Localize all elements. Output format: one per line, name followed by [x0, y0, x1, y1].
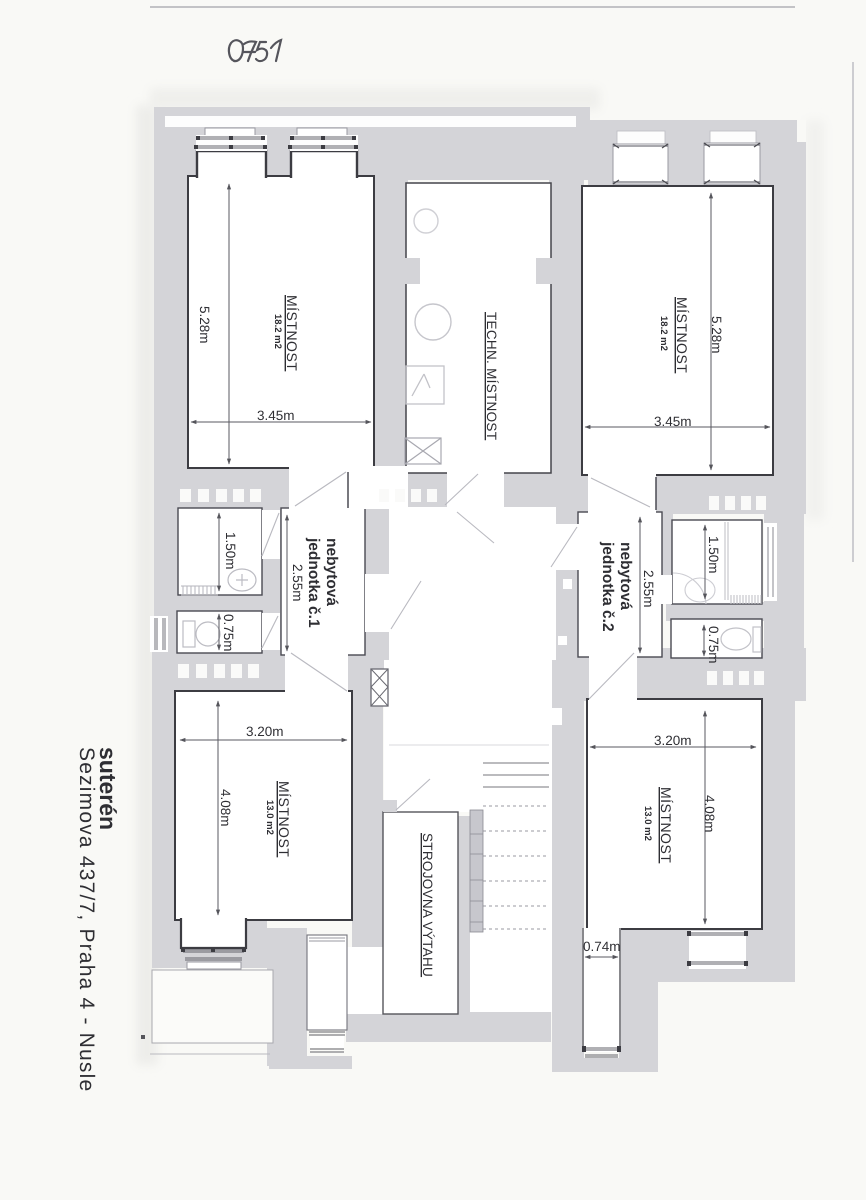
svg-text:3.45m: 3.45m — [257, 408, 295, 423]
svg-text:0.74m: 0.74m — [583, 939, 621, 954]
svg-text:3.20m: 3.20m — [246, 724, 284, 739]
svg-text:4.08m: 4.08m — [218, 789, 233, 827]
svg-text:18.2 m2: 18.2 m2 — [272, 314, 283, 349]
svg-text:4.08m: 4.08m — [702, 795, 717, 833]
svg-text:1.50m: 1.50m — [223, 532, 238, 570]
svg-text:0.75m: 0.75m — [221, 614, 236, 652]
svg-text:MÍSTNOST: MÍSTNOST — [276, 781, 292, 857]
svg-text:MÍSTNOST: MÍSTNOST — [284, 295, 300, 371]
svg-text:STROJOVNA VÝTAHU: STROJOVNA VÝTAHU — [420, 833, 435, 977]
svg-text:13.0 m2: 13.0 m2 — [264, 800, 275, 835]
svg-text:3.45m: 3.45m — [654, 414, 692, 429]
svg-text:MÍSTNOST: MÍSTNOST — [674, 297, 690, 373]
svg-text:2.55m: 2.55m — [641, 570, 656, 608]
svg-text:1.50m: 1.50m — [706, 536, 721, 574]
svg-text:13.0 m2: 13.0 m2 — [642, 806, 653, 841]
svg-text:Sezimova 437/7, Praha 4 - Nusl: Sezimova 437/7, Praha 4 - Nusle — [75, 747, 98, 1092]
svg-text:jednotka č.2: jednotka č.2 — [599, 541, 616, 632]
svg-text:18.2 m2: 18.2 m2 — [658, 316, 669, 351]
svg-text:0.75m: 0.75m — [706, 626, 721, 664]
svg-text:5.28m: 5.28m — [709, 316, 724, 354]
svg-text:TECHN. MÍSTNOST: TECHN. MÍSTNOST — [484, 312, 499, 440]
svg-text:2.55m: 2.55m — [290, 564, 305, 602]
svg-text:nebytová: nebytová — [323, 538, 340, 606]
svg-text:jednotka č.1: jednotka č.1 — [305, 537, 322, 628]
svg-text:nebytová: nebytová — [617, 542, 634, 610]
svg-text:3.20m: 3.20m — [654, 733, 692, 748]
svg-text:MÍSTNOST: MÍSTNOST — [658, 787, 674, 863]
svg-text:5.28m: 5.28m — [197, 306, 212, 344]
